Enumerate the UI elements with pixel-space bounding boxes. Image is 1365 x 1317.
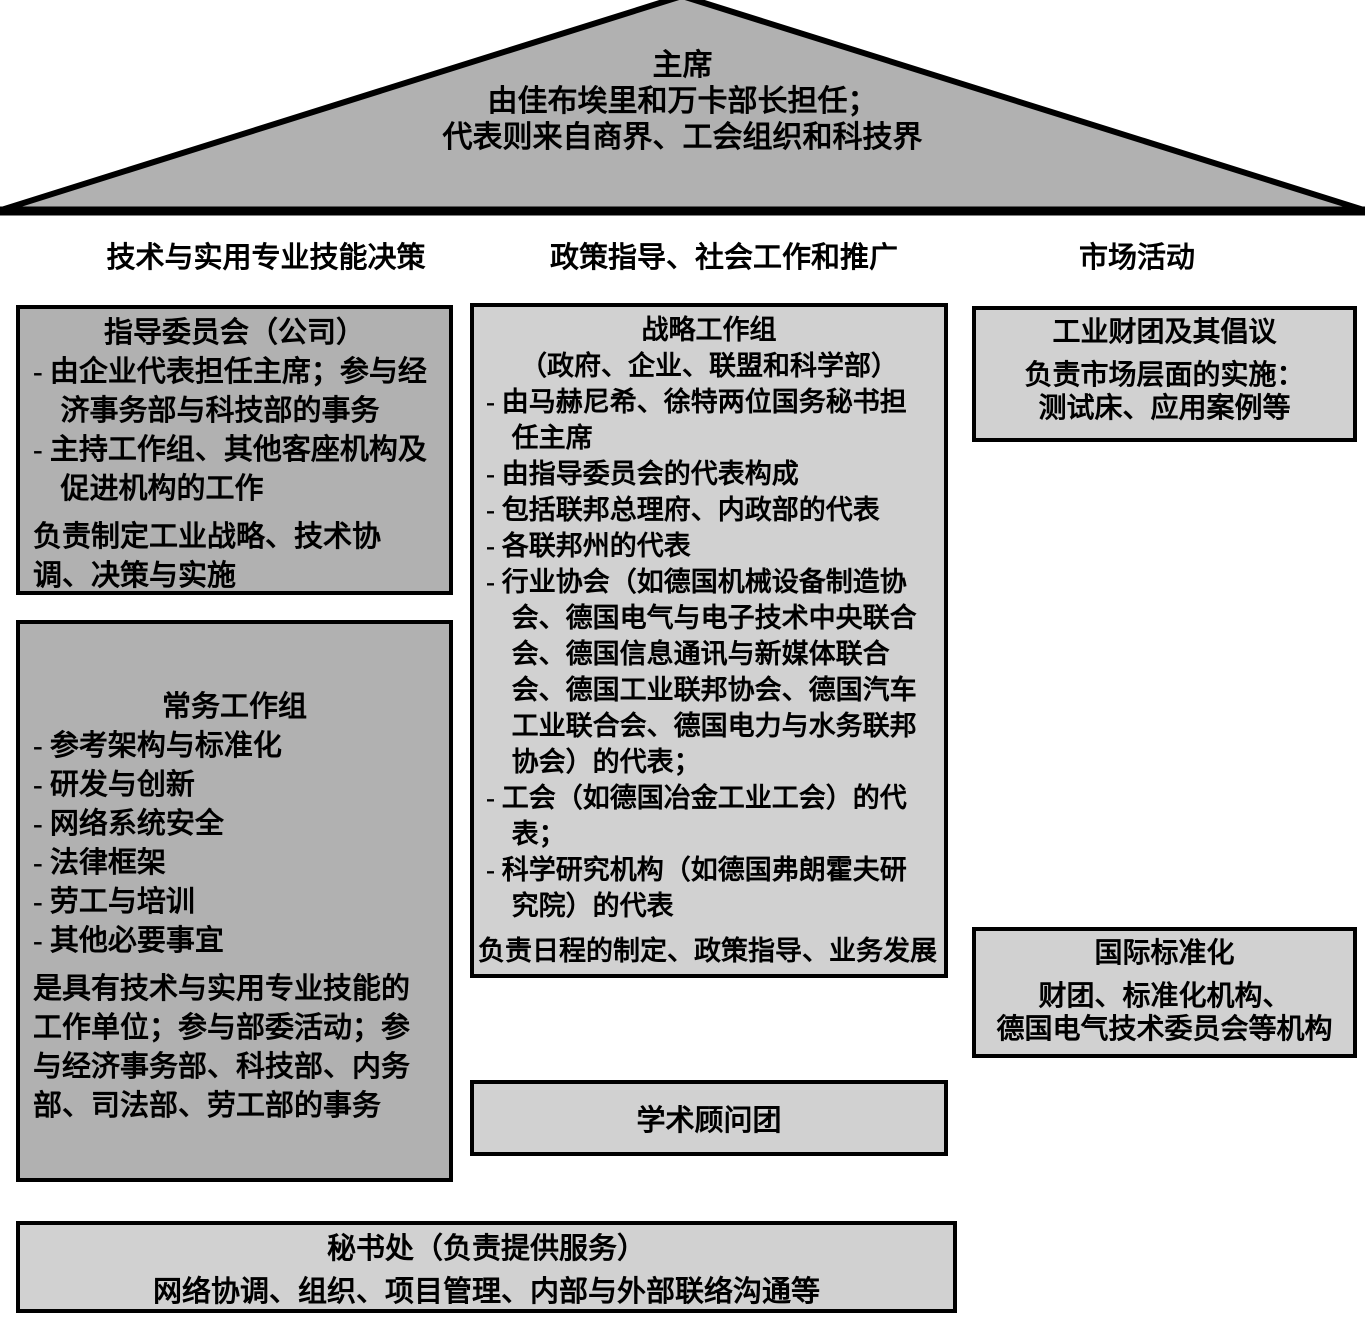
steering-committee-title: 指导委员会（公司） (33, 314, 436, 353)
industry-consortium-line: 测试床、应用案例等 (984, 392, 1345, 425)
strategy-group-item: - 行业协会（如德国机械设备制造协会、德国电气与电子技术中央联合会、德国信息通讯… (486, 564, 932, 780)
standing-working-group-box: 常务工作组 - 参考架构与标准化 - 研发与创新 - 网络系统安全 - 法律框架… (16, 620, 453, 1182)
column-header-policy-guidance: 政策指导、社会工作和推广 (474, 242, 974, 274)
strategy-group-item: - 包括联邦总理府、内政部的代表 (486, 492, 932, 528)
intl-standardization-line: 财团、标准化机构、 (984, 980, 1345, 1013)
roof-line-chairman: 由佳布埃里和万卡部长担任； (0, 84, 1365, 120)
secretariat-title: 秘书处（负责提供服务） (32, 1233, 941, 1266)
strategy-group-item: - 科学研究机构（如德国弗朗霍夫研究院）的代表 (486, 852, 932, 924)
industry-consortium-title: 工业财团及其倡议 (984, 316, 1345, 349)
strategy-working-group-box: 战略工作组 （政府、企业、联盟和科学部） - 由马赫尼希、徐特两位国务秘书担任主… (470, 303, 948, 978)
strategy-group-item: - 由指导委员会的代表构成 (486, 456, 932, 492)
standing-group-footer: 是具有技术与实用专业技能的工作单位；参与部委活动；参与经济事务部、科技部、内务部… (33, 970, 436, 1126)
strategy-group-item: - 各联邦州的代表 (486, 528, 932, 564)
steering-committee-item: - 由企业代表担任主席；参与经济事务部与科技部的事务 (33, 353, 436, 431)
standing-group-item: - 其他必要事宜 (33, 922, 436, 961)
column-header-technical-decisions: 技术与实用专业技能决策 (16, 242, 516, 274)
secretariat-body: 网络协调、组织、项目管理、内部与外部联络沟通等 (32, 1276, 941, 1309)
standing-group-item: - 法律框架 (33, 844, 436, 883)
standing-group-title: 常务工作组 (33, 688, 436, 727)
strategy-group-footer: 负责日程的制定、政策指导、业务发展 (478, 933, 932, 969)
intl-standardization-title: 国际标准化 (984, 937, 1345, 970)
standing-group-item: - 研发与创新 (33, 766, 436, 805)
strategy-group-subtitle: （政府、企业、联盟和科学部） (486, 348, 932, 384)
academic-board-title: 学术顾问团 (636, 1097, 781, 1139)
column-header-market-activities: 市场活动 (987, 242, 1287, 274)
org-chart: 主席 由佳布埃里和万卡部长担任； 代表则来自商界、工会组织和科技界 技术与实用专… (0, 0, 1365, 1317)
secretariat-box: 秘书处（负责提供服务） 网络协调、组织、项目管理、内部与外部联络沟通等 (16, 1221, 957, 1313)
strategy-group-item: - 由马赫尼希、徐特两位国务秘书担任主席 (486, 384, 932, 456)
steering-committee-footer: 负责制定工业战略、技术协调、决策与实施 (33, 518, 436, 596)
strategy-group-title: 战略工作组 (486, 312, 932, 348)
standing-group-item: - 参考架构与标准化 (33, 727, 436, 766)
roof-text-block: 主席 由佳布埃里和万卡部长担任； 代表则来自商界、工会组织和科技界 (0, 48, 1365, 156)
industry-consortium-line: 负责市场层面的实施： (984, 359, 1345, 392)
standing-group-item: - 网络系统安全 (33, 805, 436, 844)
intl-standardization-line: 德国电气技术委员会等机构 (984, 1013, 1345, 1046)
steering-committee-box: 指导委员会（公司） - 由企业代表担任主席；参与经济事务部与科技部的事务 - 主… (16, 305, 453, 595)
industry-consortium-box: 工业财团及其倡议 负责市场层面的实施： 测试床、应用案例等 (972, 306, 1357, 442)
academic-advisory-board-box: 学术顾问团 (470, 1080, 948, 1156)
roof-title: 主席 (0, 48, 1365, 84)
steering-committee-item: - 主持工作组、其他客座机构及促进机构的工作 (33, 431, 436, 509)
international-standardization-box: 国际标准化 财团、标准化机构、 德国电气技术委员会等机构 (972, 927, 1357, 1058)
strategy-group-item: - 工会（如德国冶金工业工会）的代表； (486, 780, 932, 852)
standing-group-item: - 劳工与培训 (33, 883, 436, 922)
roof-line-representatives: 代表则来自商界、工会组织和科技界 (0, 120, 1365, 156)
